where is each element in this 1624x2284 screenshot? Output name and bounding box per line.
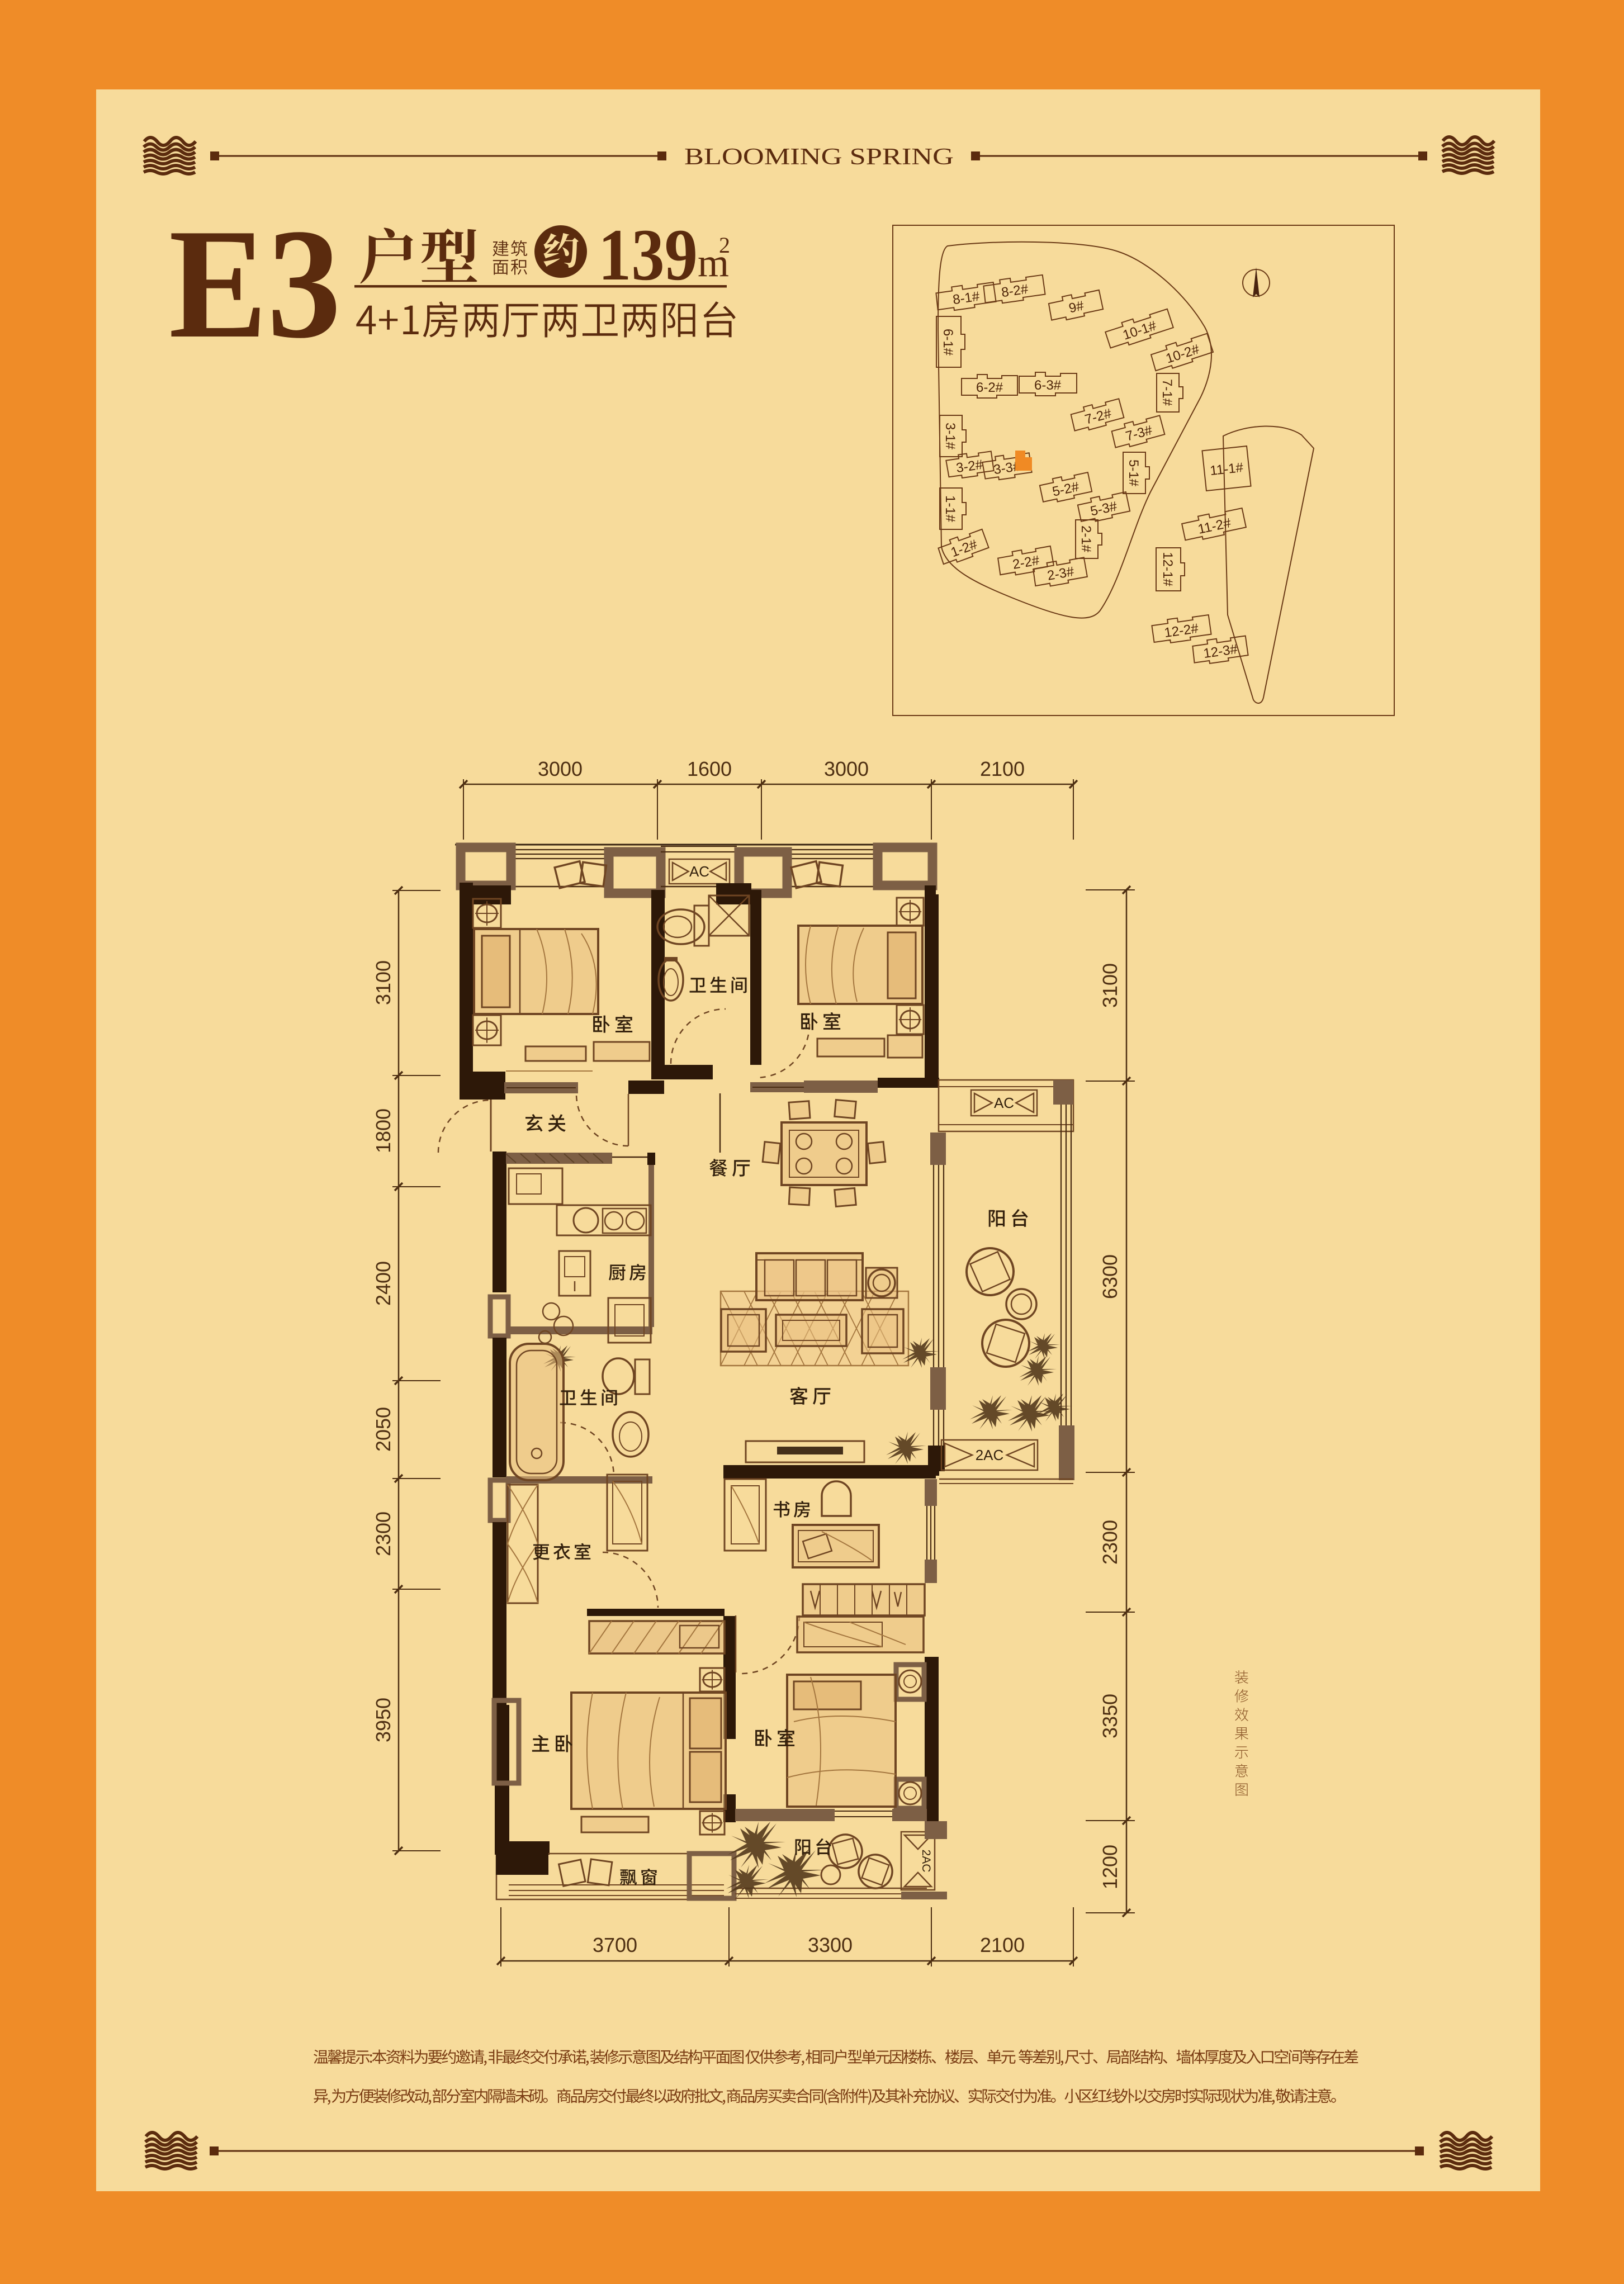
svg-text:12-1#: 12-1# bbox=[1160, 552, 1175, 586]
svg-text:3700: 3700 bbox=[593, 1934, 637, 1956]
svg-text:6300: 6300 bbox=[1099, 1254, 1121, 1299]
svg-text:6-1#: 6-1# bbox=[940, 329, 955, 356]
svg-text:3350: 3350 bbox=[1099, 1694, 1121, 1738]
svg-text:1-1#: 1-1# bbox=[943, 495, 958, 523]
svg-text:2050: 2050 bbox=[372, 1407, 395, 1452]
svg-text:2300: 2300 bbox=[1099, 1520, 1121, 1565]
svg-text:3100: 3100 bbox=[1099, 963, 1121, 1008]
svg-text:2300: 2300 bbox=[372, 1511, 395, 1556]
svg-text:2100: 2100 bbox=[980, 1934, 1025, 1956]
svg-text:2AC: 2AC bbox=[976, 1447, 1004, 1463]
svg-text:3000: 3000 bbox=[538, 757, 583, 780]
svg-text:139: 139 bbox=[598, 214, 698, 296]
svg-text:2-1#: 2-1# bbox=[1078, 525, 1093, 553]
svg-text:AC: AC bbox=[994, 1094, 1014, 1111]
svg-text:2400: 2400 bbox=[372, 1261, 395, 1306]
svg-text:1200: 1200 bbox=[1099, 1845, 1121, 1889]
svg-text:6-2#: 6-2# bbox=[976, 380, 1003, 395]
svg-text:BLOOMING SPRING: BLOOMING SPRING bbox=[684, 144, 954, 170]
svg-text:3-1#: 3-1# bbox=[943, 423, 958, 450]
svg-text:6-3#: 6-3# bbox=[1034, 378, 1062, 393]
svg-text:2: 2 bbox=[719, 233, 730, 258]
svg-text:1600: 1600 bbox=[687, 757, 732, 780]
svg-text:2AC: 2AC bbox=[920, 1850, 932, 1873]
svg-text:E3: E3 bbox=[169, 196, 341, 371]
svg-text:2100: 2100 bbox=[980, 757, 1025, 780]
svg-text:3300: 3300 bbox=[808, 1934, 853, 1956]
svg-text:3950: 3950 bbox=[372, 1698, 395, 1742]
svg-text:1800: 1800 bbox=[372, 1108, 395, 1153]
svg-text:3000: 3000 bbox=[824, 757, 869, 780]
svg-text:5-1#: 5-1# bbox=[1126, 459, 1141, 487]
svg-text:3100: 3100 bbox=[372, 960, 395, 1005]
svg-text:7-1#: 7-1# bbox=[1159, 379, 1175, 406]
svg-text:AC: AC bbox=[689, 863, 709, 880]
